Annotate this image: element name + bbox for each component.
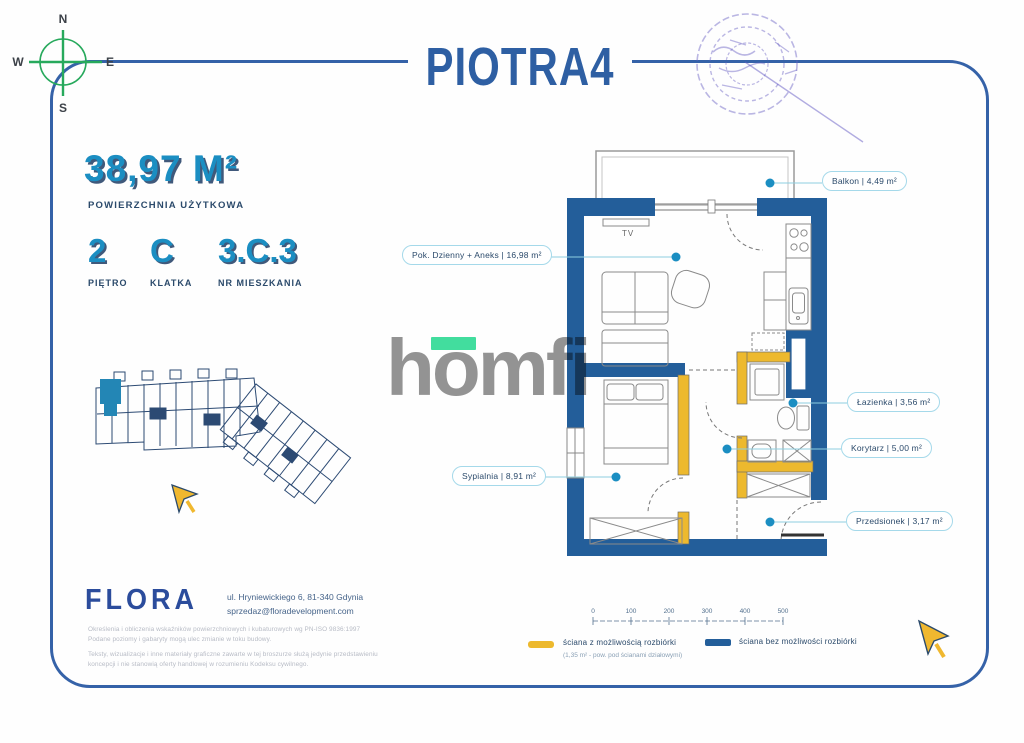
room-label-przedsionek: Przedsionek | 3,17 m² <box>846 511 953 531</box>
kitchen-stove <box>786 224 811 258</box>
page-title: PIOTRA4 <box>408 30 632 104</box>
disclaimer-line-4: koncepcji i nie stanowią oferty handlowe… <box>88 661 308 668</box>
usable-area-value: 38,97 M² <box>84 148 238 190</box>
armchair <box>669 268 713 311</box>
staircase-label: KLATKA <box>150 278 192 288</box>
developer-email[interactable]: sprzedaz@floradevelopment.com <box>227 605 363 619</box>
washing-machine <box>783 440 811 462</box>
compass-rose-icon: N S W E <box>10 4 118 116</box>
apartment-number-block: 3.C.3 NR MIESZKANIA <box>218 232 303 288</box>
legend-label-demolishable: ściana z możliwością rozbiórki <box>563 638 676 647</box>
apartment-number-label: NR MIESZKANIA <box>218 278 303 288</box>
room-label-sypialnia: Sypialnia | 8,91 m² <box>452 466 546 486</box>
toilet <box>778 406 810 430</box>
compass-n-label: N <box>59 12 68 26</box>
legend-label-permanent: ściana bez możliwości rozbiórki <box>739 637 857 646</box>
disclaimer-line-3: Teksty, wizualizacje i inne materiały gr… <box>88 651 378 658</box>
cursor-arrow-icon <box>172 485 197 512</box>
highlighted-unit-marker <box>100 379 121 404</box>
compass-s-label: S <box>59 101 67 115</box>
room-label-balkon: Balkon | 4,49 m² <box>822 171 907 191</box>
room-label-korytarz: Korytarz | 5,00 m² <box>841 438 932 458</box>
sofa <box>602 272 668 366</box>
svg-text:0: 0 <box>591 608 595 615</box>
usable-area-label: POWIERZCHNIA UŻYTKOWA <box>88 200 244 211</box>
washbasin <box>748 440 776 462</box>
tv-label: TV <box>622 229 634 238</box>
shower <box>750 364 784 400</box>
svg-text:400: 400 <box>740 608 751 615</box>
tv-unit <box>603 219 649 226</box>
svg-text:200: 200 <box>664 608 675 615</box>
room-label-pok-dzienny: Pok. Dzienny + Aneks | 16,98 m² <box>402 245 552 265</box>
installation-shaft <box>791 338 806 390</box>
floor-value: 2 <box>88 232 128 270</box>
cursor-arrow-icon-bottom <box>905 608 975 670</box>
bed <box>604 380 668 464</box>
room-label-lazienka: Łazienka | 3,56 m² <box>847 392 940 412</box>
hallway-wardrobe <box>747 474 810 497</box>
floor-label: PIĘTRO <box>88 278 128 288</box>
balcony-outline <box>596 151 794 205</box>
svg-text:500: 500 <box>778 608 789 615</box>
compass-w-label: W <box>12 55 24 69</box>
homfi-watermark-macron <box>431 337 476 350</box>
homfi-watermark: homfi <box>386 328 589 408</box>
staircase-block: C KLATKA <box>150 232 192 288</box>
svg-text:300: 300 <box>702 608 713 615</box>
compass-e-label: E <box>106 55 114 69</box>
developer-logo: FLORA <box>85 584 198 617</box>
floor-block: 2 PIĘTRO <box>88 232 128 288</box>
svg-text:100: 100 <box>626 608 637 615</box>
stamp-signature-line <box>745 62 863 142</box>
apartment-number-value: 3.C.3 <box>218 232 303 270</box>
legend-swatch-demolishable <box>528 641 554 648</box>
scale-bar: 0 100 200 300 400 500 <box>584 604 796 630</box>
bedroom-window <box>567 428 584 478</box>
kitchen-sink <box>789 288 808 324</box>
building-site-plan <box>84 364 352 532</box>
staircase-value: C <box>150 232 192 270</box>
disclaimer-line-2: Podane poziomy i gabaryty mogą ulec zmia… <box>88 636 271 643</box>
approval-stamp <box>655 12 875 147</box>
developer-address: ul. Hryniewickiego 6, 81-340 Gdynia <box>227 591 363 605</box>
developer-contact: ul. Hryniewickiego 6, 81-340 Gdynia sprz… <box>227 591 363 618</box>
legend-note-demolishable: (1,35 m² - pow. pod ścianami działowymi) <box>563 652 682 659</box>
legend-swatch-permanent <box>705 639 731 646</box>
disclaimer-line-1: Określenia i obliczenia wskaźników powie… <box>88 626 360 633</box>
